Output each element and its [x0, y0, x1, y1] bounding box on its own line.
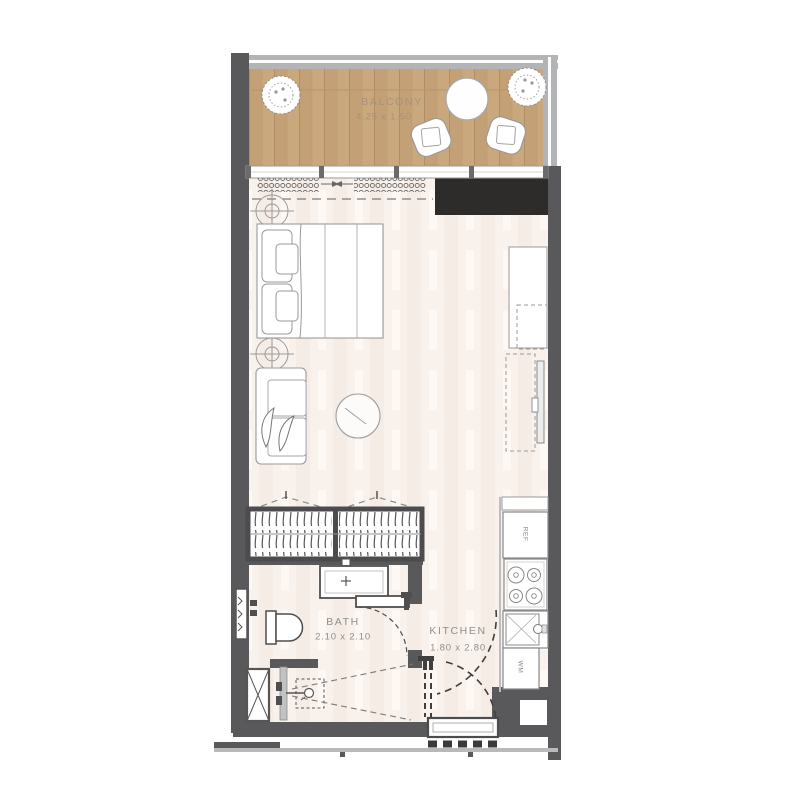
hanging-clothes [339, 512, 420, 533]
balcony-round-table [446, 78, 488, 120]
window-mullion [469, 166, 474, 178]
window-mullion [246, 166, 251, 178]
hanging-clothes [251, 535, 332, 556]
burner-icon [508, 567, 524, 583]
toilet [266, 611, 303, 644]
wall-hook [250, 600, 257, 606]
entry-door-leaf [428, 718, 498, 737]
service-shaft [520, 700, 547, 725]
coffee-table [336, 394, 380, 438]
dark-cabinet-unit [435, 178, 548, 215]
bed [257, 224, 383, 338]
wall-bottom-left [233, 722, 432, 737]
floor-plan-graphics [0, 0, 800, 800]
hanging-clothes [251, 512, 332, 533]
stove [504, 559, 547, 610]
wall-right [548, 166, 561, 760]
faucet-icon [534, 625, 543, 634]
pillow [276, 291, 298, 321]
shaft-box [247, 669, 269, 721]
shower-glass [280, 667, 287, 720]
curtain-stack-right [354, 178, 426, 192]
desk [509, 247, 547, 349]
balcony-plant-icon [508, 68, 546, 106]
window-mullion [543, 166, 548, 178]
burner-icon [528, 569, 541, 582]
window-mullion [394, 166, 399, 178]
refrigerator-label: REF. [522, 527, 529, 544]
washing-machine-label: WM [517, 661, 524, 674]
floor-plan: BALCONY 4.25 x 1.50 BATH 2.10 x 2.10 KIT… [0, 0, 800, 800]
balcony-plant-icon [262, 76, 300, 114]
hanging-clothes [339, 535, 420, 556]
towel-rail [236, 589, 247, 639]
pillow [276, 244, 298, 274]
baseline [214, 748, 558, 752]
shower-head-icon [305, 689, 314, 698]
window-band [246, 166, 548, 178]
wall-hook [250, 610, 257, 616]
wall-shower-top [270, 659, 318, 668]
burner-icon [526, 588, 542, 604]
kitchen-sink [503, 611, 548, 648]
tick-mark [340, 752, 345, 757]
window-mullion [319, 166, 324, 178]
burner-icon [510, 590, 523, 603]
tick-mark [468, 752, 473, 757]
curtain-stack-left [257, 178, 319, 192]
